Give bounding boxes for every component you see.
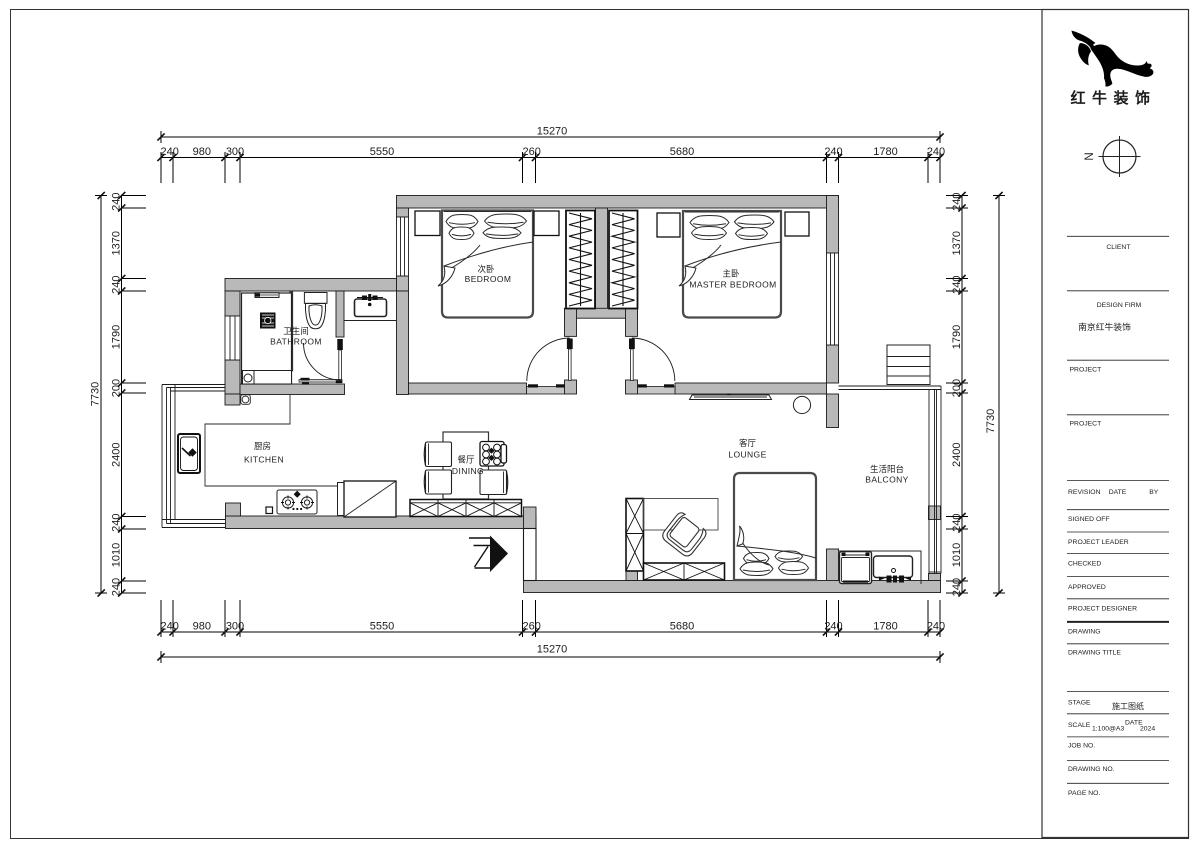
svg-text:240: 240 (111, 276, 123, 294)
svg-text:980: 980 (193, 146, 211, 158)
svg-text:次卧: 次卧 (477, 264, 495, 274)
svg-text:KITCHEN: KITCHEN (244, 455, 284, 465)
svg-text:PAGE NO.: PAGE NO. (1068, 790, 1100, 797)
svg-text:7730: 7730 (985, 409, 997, 433)
svg-text:240: 240 (927, 146, 945, 158)
svg-text:200: 200 (951, 379, 963, 397)
svg-text:200: 200 (111, 379, 123, 397)
svg-text:300: 300 (226, 146, 244, 158)
svg-text:DRAWING: DRAWING (1068, 629, 1101, 636)
svg-text:15270: 15270 (537, 644, 568, 656)
svg-text:1370: 1370 (951, 231, 963, 255)
svg-text:5550: 5550 (370, 146, 394, 158)
svg-text:1790: 1790 (951, 325, 963, 349)
svg-text:REVISION: REVISION (1068, 489, 1101, 496)
svg-text:红牛装饰: 红牛装饰 (1070, 89, 1156, 107)
svg-text:1010: 1010 (111, 543, 123, 567)
svg-text:施工图纸: 施工图纸 (1112, 701, 1144, 711)
svg-text:240: 240 (824, 621, 842, 633)
svg-text:5680: 5680 (670, 621, 694, 633)
svg-text:240: 240 (111, 578, 123, 596)
svg-text:CLIENT: CLIENT (1106, 244, 1130, 251)
svg-text:N: N (1084, 152, 1096, 160)
svg-text:餐厅: 餐厅 (457, 455, 475, 465)
svg-text:主卧: 主卧 (722, 269, 740, 279)
svg-text:5550: 5550 (370, 621, 394, 633)
svg-text:BEDROOM: BEDROOM (465, 274, 512, 284)
svg-text:240: 240 (111, 193, 123, 211)
svg-text:BATHROOM: BATHROOM (270, 337, 322, 347)
svg-text:1370: 1370 (111, 231, 123, 255)
svg-text:BY: BY (1149, 489, 1159, 496)
svg-text:PROJECT DESIGNER: PROJECT DESIGNER (1068, 606, 1137, 613)
svg-text:PROJECT: PROJECT (1070, 421, 1102, 428)
svg-text:PROJECT LEADER: PROJECT LEADER (1068, 539, 1129, 546)
svg-text:980: 980 (193, 621, 211, 633)
svg-text:2400: 2400 (951, 442, 963, 466)
svg-text:1:100@A3: 1:100@A3 (1092, 726, 1124, 733)
svg-text:240: 240 (951, 514, 963, 532)
svg-text:客厅: 客厅 (739, 438, 757, 448)
svg-text:STAGE: STAGE (1068, 700, 1091, 707)
svg-text:BALCONY: BALCONY (865, 475, 908, 485)
svg-text:15270: 15270 (537, 126, 568, 138)
svg-text:1780: 1780 (873, 621, 897, 633)
svg-text:DRAWING NO.: DRAWING NO. (1068, 766, 1115, 773)
svg-text:LOUNGE: LOUNGE (728, 450, 766, 460)
svg-text:300: 300 (226, 621, 244, 633)
svg-text:CHECKED: CHECKED (1068, 561, 1101, 568)
svg-text:生活阳台: 生活阳台 (870, 464, 904, 474)
svg-text:DINING: DINING (452, 466, 484, 476)
svg-text:DRAWING TITLE: DRAWING TITLE (1068, 650, 1121, 657)
svg-text:SCALE: SCALE (1068, 722, 1091, 729)
svg-text:1010: 1010 (951, 543, 963, 567)
svg-text:卫生间: 卫生间 (283, 326, 309, 336)
svg-text:MASTER BEDROOM: MASTER BEDROOM (689, 280, 776, 290)
svg-text:240: 240 (111, 514, 123, 532)
svg-text:南京红牛装饰: 南京红牛装饰 (1078, 321, 1131, 332)
svg-text:厨房: 厨房 (254, 441, 271, 451)
svg-text:JOB NO.: JOB NO. (1068, 743, 1095, 750)
svg-text:240: 240 (824, 146, 842, 158)
svg-text:1780: 1780 (873, 146, 897, 158)
svg-text:SIGNED OFF: SIGNED OFF (1068, 516, 1110, 523)
svg-text:260: 260 (523, 146, 541, 158)
svg-text:240: 240 (161, 146, 179, 158)
svg-text:2400: 2400 (111, 442, 123, 466)
svg-text:240: 240 (161, 621, 179, 633)
svg-text:240: 240 (951, 193, 963, 211)
svg-text:2024: 2024 (1140, 726, 1155, 733)
svg-text:DESIGN FIRM: DESIGN FIRM (1097, 302, 1142, 309)
svg-text:1790: 1790 (111, 325, 123, 349)
svg-text:APPROVED: APPROVED (1068, 584, 1106, 591)
svg-text:240: 240 (951, 578, 963, 596)
svg-text:240: 240 (951, 276, 963, 294)
svg-text:260: 260 (523, 621, 541, 633)
svg-text:PROJECT: PROJECT (1070, 367, 1102, 374)
svg-text:7730: 7730 (90, 382, 102, 406)
svg-text:DATE: DATE (1109, 489, 1127, 496)
svg-text:240: 240 (927, 621, 945, 633)
svg-text:5680: 5680 (670, 146, 694, 158)
